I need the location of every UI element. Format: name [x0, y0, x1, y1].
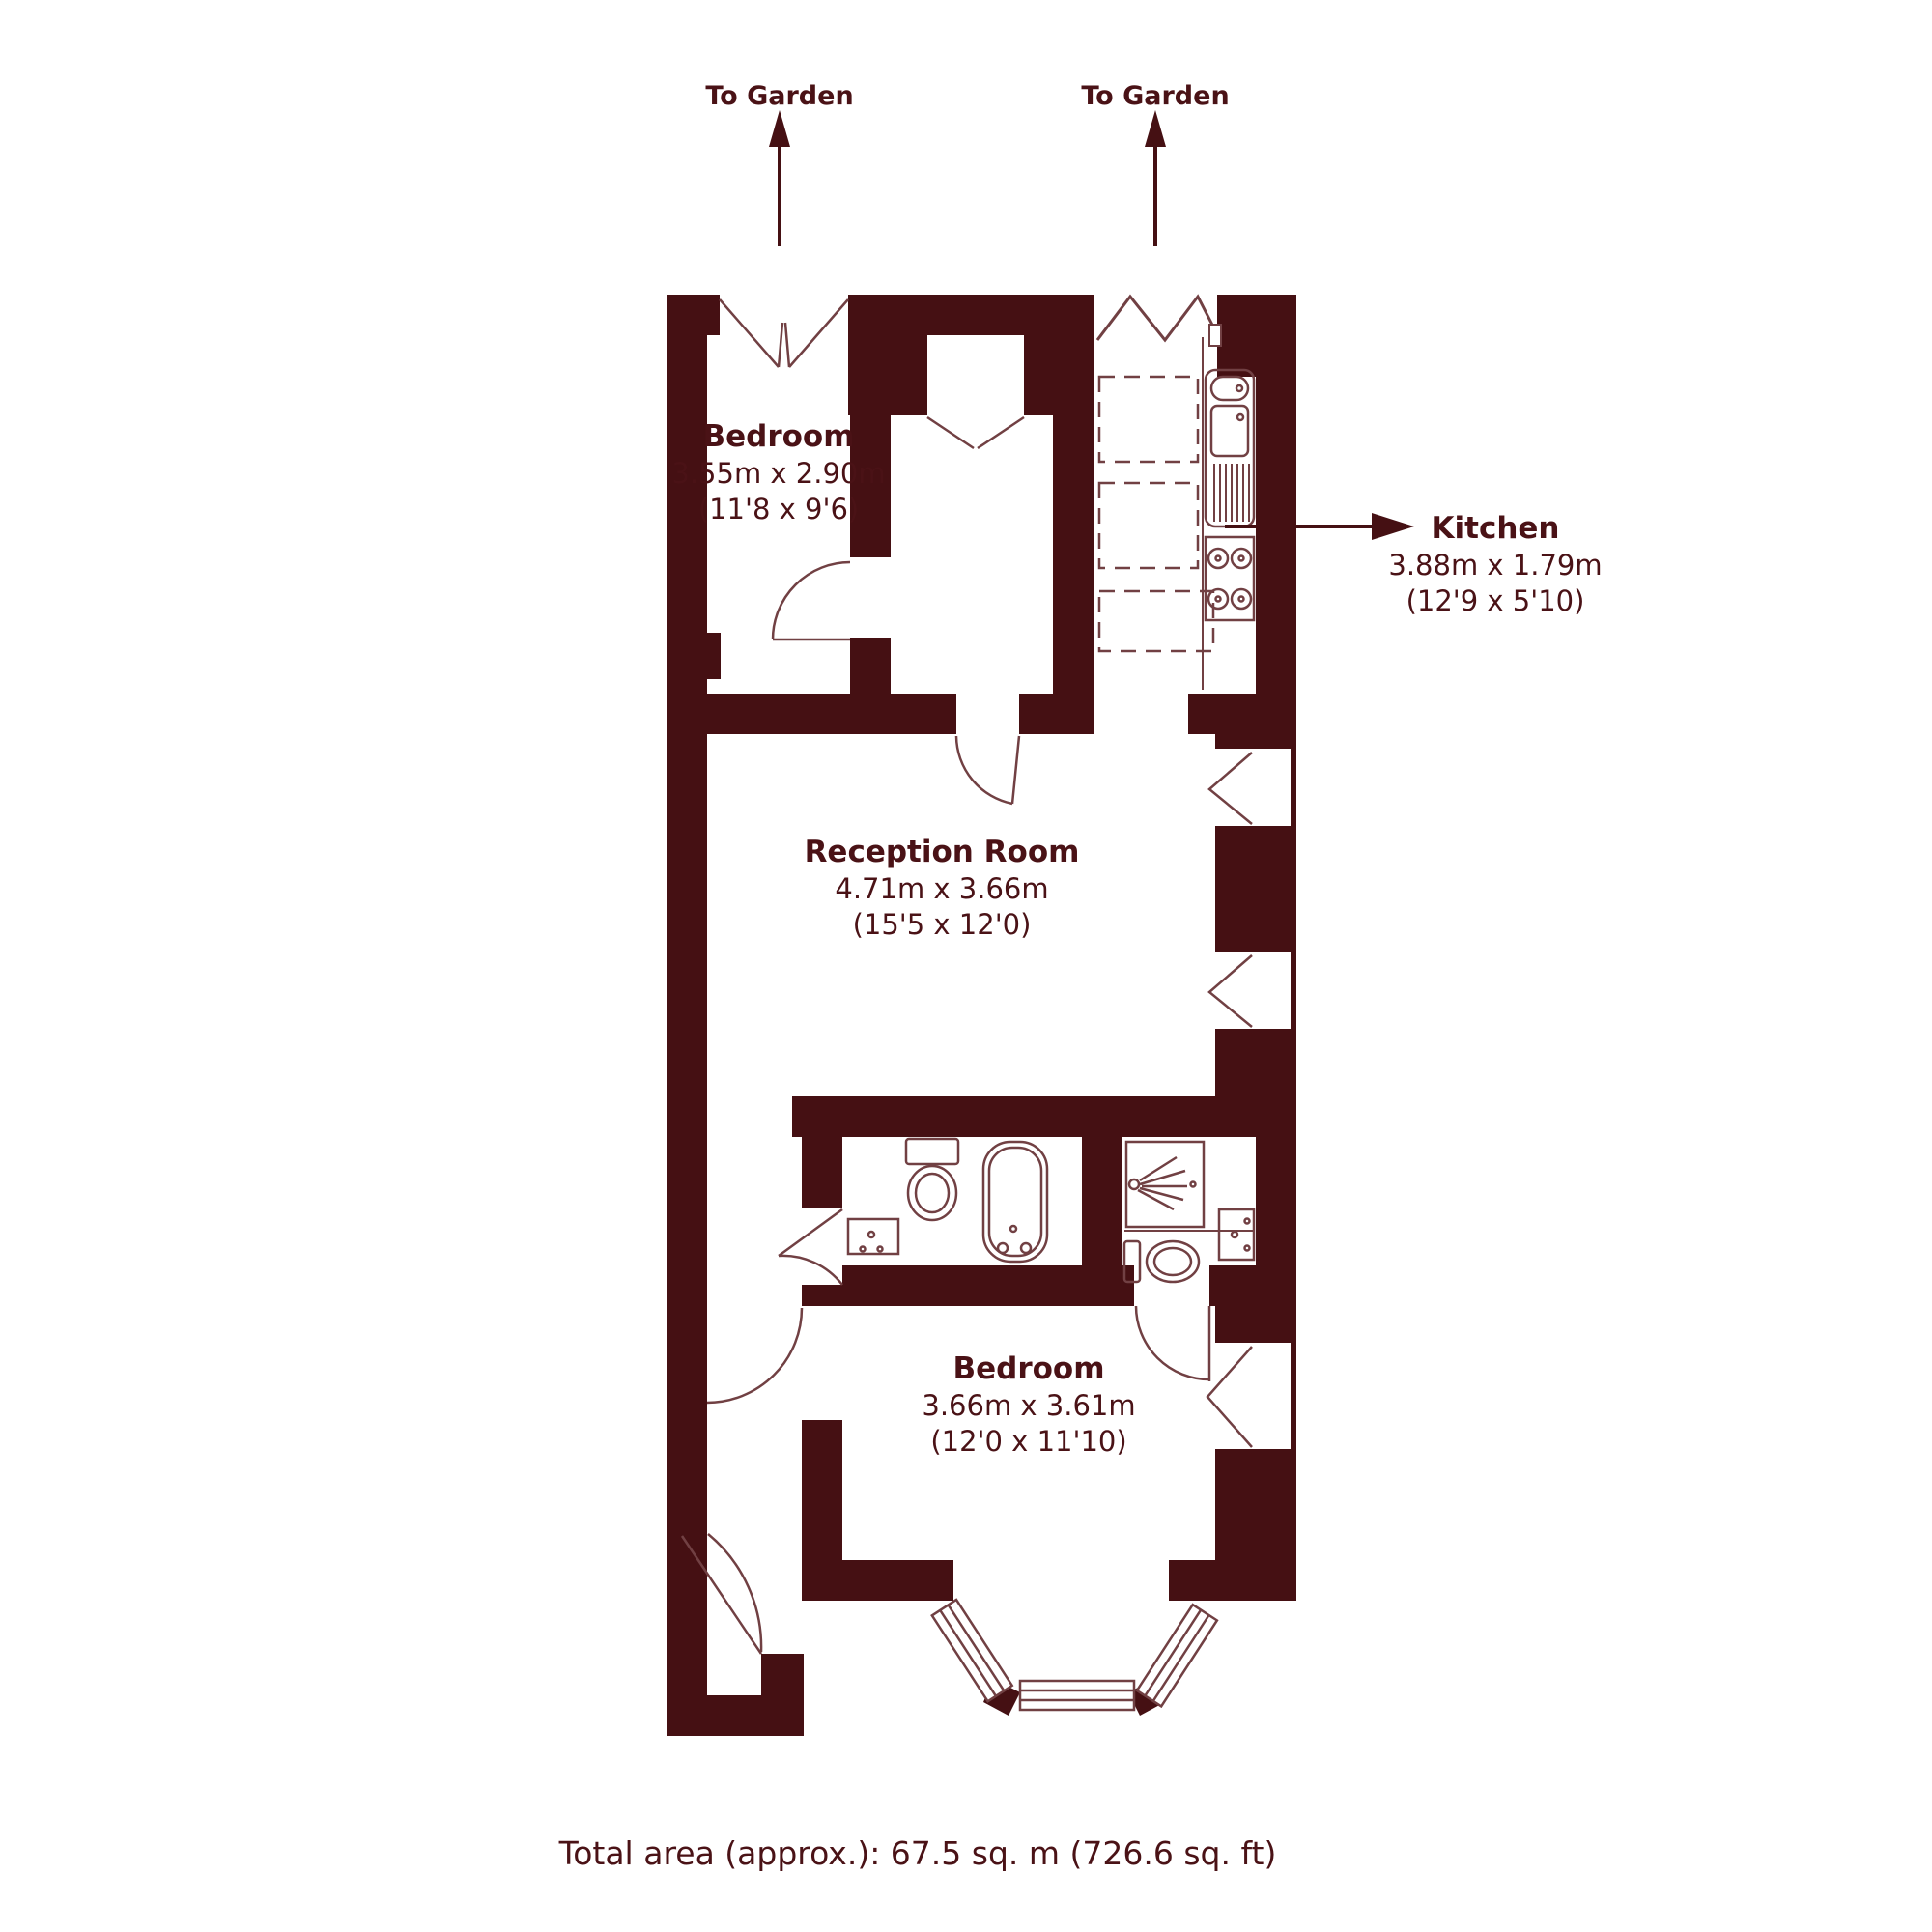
window-leaves-icon-3	[1207, 1347, 1252, 1447]
window-recess-1	[1250, 749, 1291, 826]
window-leaves-icon-2	[1209, 955, 1252, 1027]
shower-room-door-icon	[1136, 1306, 1209, 1381]
basin-icon	[848, 1219, 898, 1254]
bedroom1-dims-metric: 3.55m x 2.90m	[671, 457, 885, 490]
bay-window-right	[1137, 1605, 1217, 1706]
corridor-right-wall-a	[802, 1137, 842, 1207]
bedroom1-dims-imperial: (11'8 x 9'6)	[698, 493, 859, 526]
bathroom-door-icon	[779, 1209, 842, 1285]
bedroom1-door-icon	[773, 562, 850, 639]
corridor-right-wall-b	[802, 1285, 842, 1306]
bifold-leaf	[1209, 325, 1221, 346]
front-door-block	[761, 1654, 804, 1695]
floorplan-page: To Garden To Garden	[0, 0, 1932, 1932]
window-recess-3	[1250, 1343, 1291, 1449]
kitchen-title: Kitchen	[1431, 511, 1559, 546]
bifold-door-icon	[1097, 297, 1215, 340]
bedroom2-door-icon	[707, 1308, 802, 1403]
total-area-text: Total area (approx.): 67.5 sq. m (726.6 …	[558, 1834, 1277, 1872]
french-door-icon	[720, 299, 848, 367]
bathroom-fixtures	[848, 1139, 1254, 1282]
bay-left-block	[802, 1560, 953, 1601]
bedroom1-right-wall-lower	[850, 638, 891, 694]
left-wall-pier	[707, 633, 721, 679]
reception-door-icon	[956, 736, 1019, 804]
bathroom-top-wall	[792, 1096, 1256, 1137]
bedroom1-bottom-wall	[667, 694, 956, 734]
closet-doors-icon	[927, 417, 1024, 448]
kitchen-fixtures	[1099, 337, 1254, 690]
kitchen-units-dashed	[1099, 377, 1213, 651]
bay-window-left	[932, 1600, 1012, 1701]
bedroom2-dims-metric: 3.66m x 3.61m	[922, 1389, 1135, 1422]
garden-arrow-icon	[769, 110, 790, 246]
hall-bottom-wall	[667, 1695, 804, 1736]
kitchen-left-wall	[1053, 415, 1094, 734]
shower-icon	[1124, 1142, 1254, 1231]
to-garden-label-2: To Garden	[1081, 81, 1229, 111]
window-leaves-icon-1	[1209, 753, 1252, 824]
to-garden-label-1: To Garden	[705, 81, 853, 111]
bathroom-bottom-wall	[842, 1265, 1134, 1306]
sink-icon	[1206, 370, 1254, 526]
bedroom1-title: Bedroom	[702, 419, 854, 454]
toilet-icon	[906, 1139, 958, 1220]
window-recess-2	[1250, 952, 1291, 1029]
bay-window-center	[1020, 1681, 1134, 1710]
basin-icon-2	[1219, 1209, 1254, 1260]
reception-dims-imperial: (15'5 x 12'0)	[853, 908, 1032, 941]
reception-dims-metric: 4.71m x 3.66m	[835, 872, 1048, 905]
bath-icon	[983, 1142, 1047, 1262]
kitchen-bottom-stub	[1188, 694, 1256, 734]
reception-title: Reception Room	[805, 835, 1080, 869]
top-wall-left	[667, 295, 720, 335]
bathroom-divider-wall	[1082, 1137, 1122, 1265]
bay-right-block	[1169, 1560, 1296, 1601]
bay-window	[932, 1600, 1217, 1710]
floorplan-svg: To Garden To Garden	[0, 0, 1932, 1932]
garden-arrow-icon-2	[1145, 110, 1166, 246]
toilet-icon-2	[1124, 1241, 1199, 1282]
bedroom2-title: Bedroom	[952, 1351, 1104, 1386]
kitchen-dims-metric: 3.88m x 1.79m	[1388, 549, 1602, 582]
bedroom2-dims-imperial: (12'0 x 11'10)	[930, 1425, 1126, 1458]
kitchen-dims-imperial: (12'9 x 5'10)	[1406, 584, 1585, 617]
kitchen-top-stub	[1217, 295, 1256, 377]
corridor-right-wall-c	[802, 1420, 842, 1560]
